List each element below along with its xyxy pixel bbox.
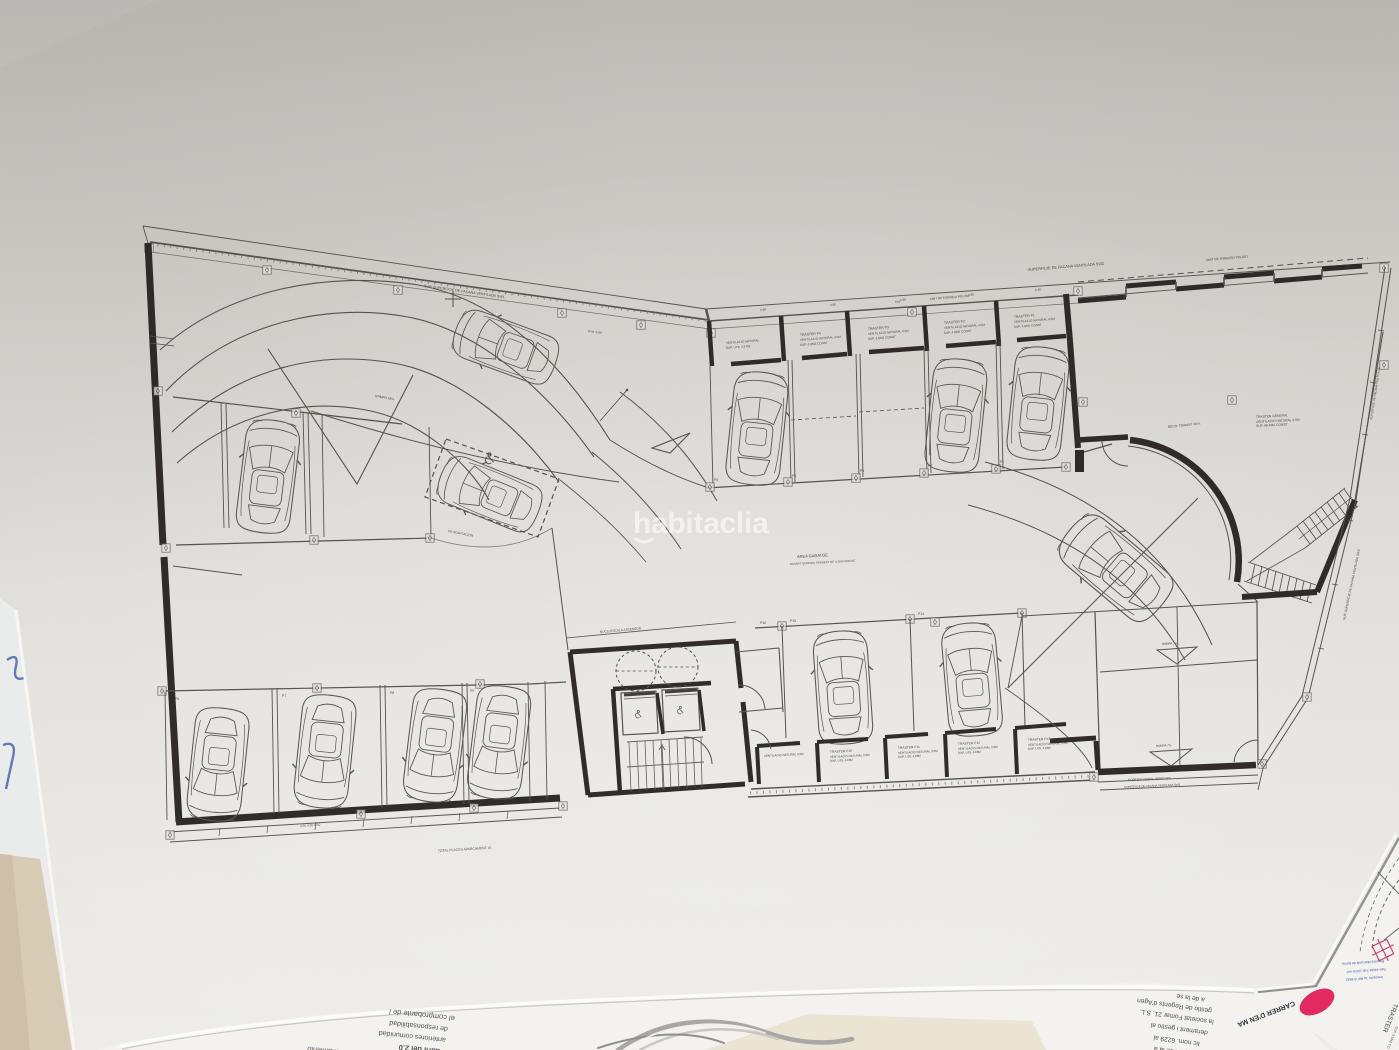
svg-text:habitaclia: habitaclia — [633, 507, 769, 540]
